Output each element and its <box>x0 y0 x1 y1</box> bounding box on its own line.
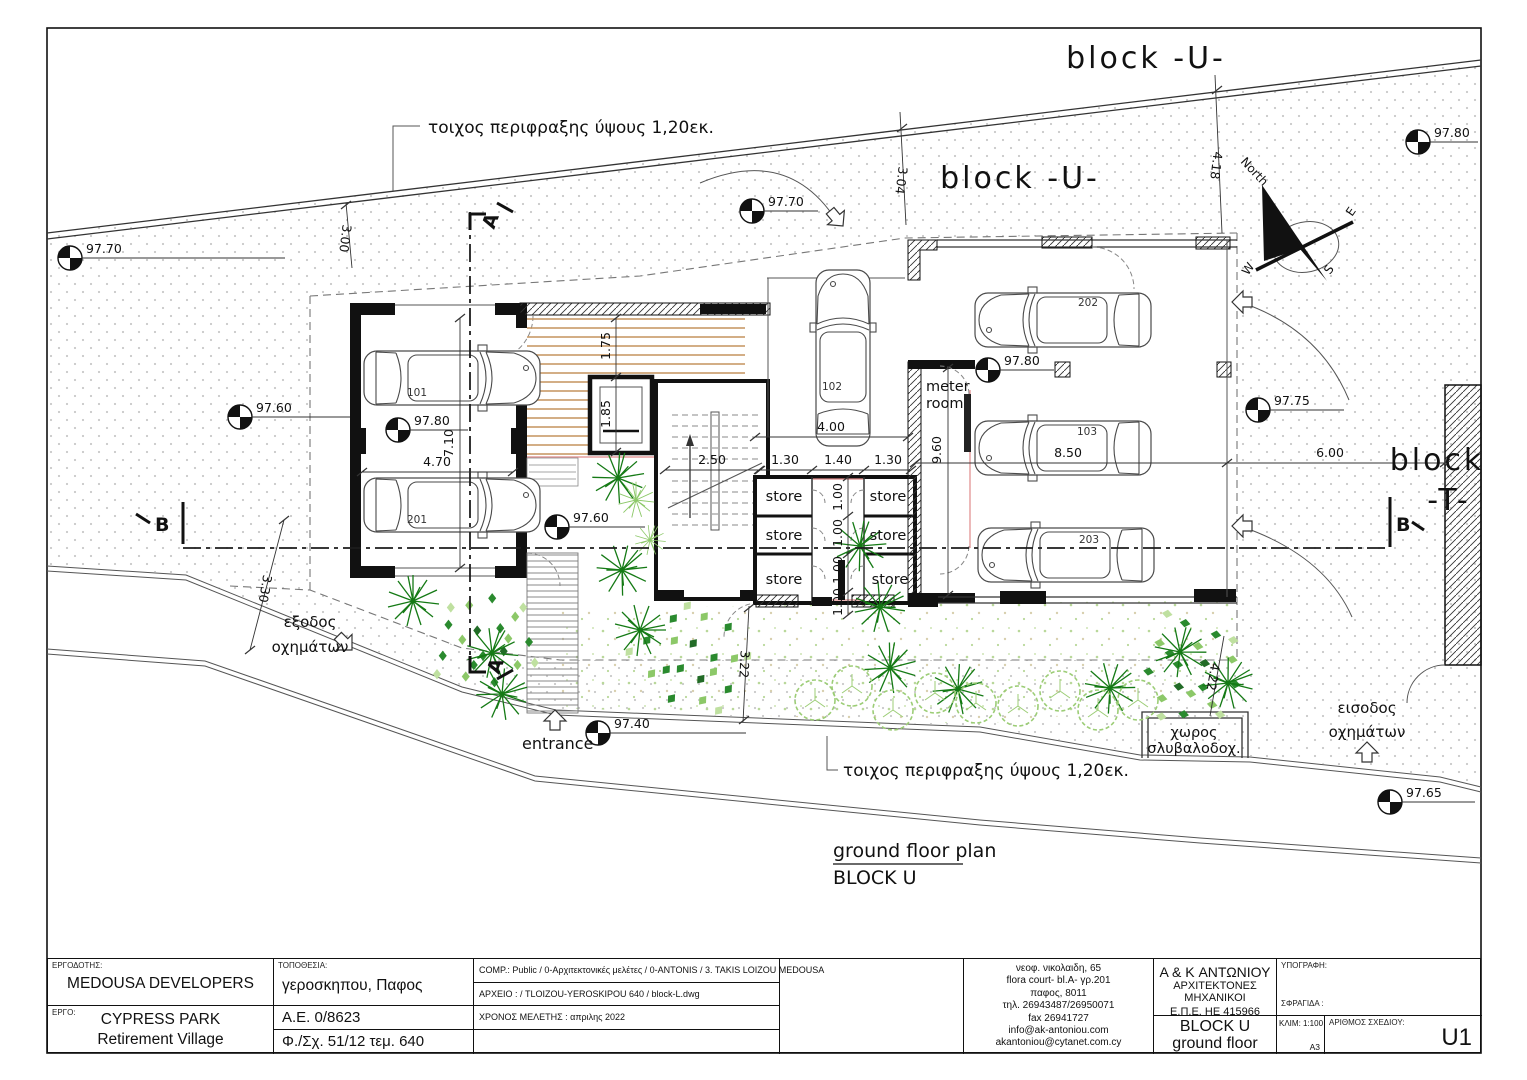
firm-line1: A & K ΑΝΤΩΝΙΟΥ <box>1154 964 1276 980</box>
comp-cell: COMP.: Public / 0-Αρχιτεκτονικές μελέτες… <box>473 959 779 983</box>
drawing-name-line2: ground floor <box>1154 1035 1276 1052</box>
staircase <box>656 381 768 637</box>
store-label-4: store <box>870 528 907 544</box>
dim-1-00c: 1.00 <box>830 556 845 584</box>
ae-value: Α.Ε. 0/8623 <box>282 1009 473 1026</box>
address-line: τηλ. 26943487/26950071 <box>964 1000 1153 1012</box>
dim-1-00d: 1.00 <box>830 588 845 616</box>
store-label-3: store <box>766 528 803 544</box>
section-b-right: B <box>1396 514 1410 536</box>
address-line: νεοφ. νικολαιδη, 65 <box>964 963 1153 975</box>
address-line: info@ak-antoniou.com <box>964 1025 1153 1037</box>
level-97-70-nw: 97.70 <box>86 241 122 256</box>
project-cell: ΕΡΓΟ: CYPRESS PARK Retirement Village <box>48 1006 273 1054</box>
level-97-70-top: 97.70 <box>768 194 804 209</box>
dim-7-10: 7.10 <box>441 429 456 457</box>
address-line: fax 26941727 <box>964 1013 1153 1025</box>
car-201 <box>364 472 540 538</box>
fence-label-top: τοιχος περιφραξης ύψους 1,20εκ. <box>428 118 714 138</box>
project-line2: Retirement Village <box>48 1030 273 1050</box>
level-97-80-garage: 97.80 <box>414 413 450 428</box>
address-line: παφος, 8011 <box>964 988 1153 1000</box>
scale-cell: ΚΛΙΜ: 1:100 A3 <box>1276 1016 1324 1054</box>
sheet-value: Φ./Σχ. 51/12 τεμ. 640 <box>282 1033 473 1050</box>
level-97-80-ne: 97.80 <box>1434 125 1470 140</box>
dim-4-00: 4.00 <box>817 419 845 434</box>
block-t-line2: -T- <box>1427 483 1470 518</box>
section-b-left: B <box>155 514 169 536</box>
car-label-103: 103 <box>1077 426 1097 438</box>
project-label: ΕΡΓΟ: <box>52 1008 76 1017</box>
bins-label-2: σλυβαλοδοχ. <box>1147 741 1240 757</box>
level-97-60-left: 97.60 <box>256 400 292 415</box>
level-97-65-road: 97.65 <box>1406 785 1442 800</box>
paper-size: A3 <box>1310 1042 1320 1052</box>
drawing-name-cell: BLOCK U ground floor <box>1153 1016 1276 1054</box>
store-label-5: store <box>766 572 803 588</box>
number-label: ΑΡΙΘΜΟΣ ΣΧΕΔΙΟΥ: <box>1329 1018 1404 1027</box>
entry-label-2: οχημάτων <box>1329 723 1406 741</box>
meter-room-label-2: room <box>926 396 964 412</box>
store-label-1: store <box>766 489 803 505</box>
level-97-40-entrance: 97.40 <box>614 716 650 731</box>
block-u-title-top: block -U- <box>1066 41 1226 76</box>
signature-cell: ΥΠΟΓΡΑΦΗ: ΣΦΡΑΓΙΔΑ : <box>1276 959 1482 1016</box>
location-value: γεροσκηπου, Παφος <box>282 977 473 995</box>
car-203 <box>978 522 1154 588</box>
dim-8-50: 8.50 <box>1054 445 1082 460</box>
architect-firm: A & K ΑΝΤΩΝΙΟΥ ΑΡΧΙΤΕΚΤΟΝΕΣ ΜΗΧΑΝΙΚΟΙ Ε.… <box>1153 959 1276 1016</box>
block-u-title-inner: block -U- <box>940 161 1100 196</box>
walkway <box>527 553 578 713</box>
car-label-201: 201 <box>407 514 427 526</box>
sheet-cell: Φ./Σχ. 51/12 τεμ. 640 <box>273 1030 473 1054</box>
drawing-name-line1: BLOCK U <box>1154 1018 1276 1035</box>
entrance-label: entrance <box>522 734 593 753</box>
car-label-203: 203 <box>1079 534 1099 546</box>
dim-1-85: 1.85 <box>598 400 613 428</box>
plan-title-line1: ground floor plan <box>833 840 996 862</box>
meter-room-label-1: meter <box>926 379 970 395</box>
level-97-80-carport: 97.80 <box>1004 353 1040 368</box>
firm-line2: ΑΡΧΙΤΕΚΤΟΝΕΣ ΜΗΧΑΝΙΚΟΙ <box>1154 980 1276 1004</box>
dim-3-22: 3.22 <box>736 650 752 679</box>
level-97-75-east: 97.75 <box>1274 393 1310 408</box>
plan-title-line2: BLOCK U <box>833 867 917 889</box>
bins-label-1: χωρος <box>1170 725 1217 741</box>
drawing-number: U1 <box>1441 1024 1472 1052</box>
dim-1-30b: 1.30 <box>874 452 902 467</box>
study-value: ΧΡΟΝΟΣ ΜΕΛΕΤΗΣ : απριλης 2022 <box>479 1012 779 1022</box>
dim-2-50: 2.50 <box>698 452 726 467</box>
store-label-2: store <box>870 489 907 505</box>
project-line1: CYPRESS PARK <box>48 1010 273 1030</box>
car-202 <box>975 287 1151 353</box>
signature-label: ΥΠΟΓΡΑΦΗ: <box>1281 961 1327 970</box>
ae-cell: Α.Ε. 0/8623 <box>273 1006 473 1030</box>
exit-label-1: εξοδος <box>284 613 337 631</box>
fence-label-bottom: τοιχος περιφραξης ύψους 1,20εκ. <box>843 761 1129 781</box>
dim-1-00b: 1.00 <box>830 519 845 547</box>
dim-6-00: 6.00 <box>1316 445 1344 460</box>
car-label-202: 202 <box>1078 297 1098 309</box>
dim-1-00a: 1.00 <box>830 483 845 511</box>
car-label-101: 101 <box>407 387 427 399</box>
dim-1-40: 1.40 <box>824 452 852 467</box>
garden-strip <box>560 600 1238 724</box>
file-cell: ΑΡΧΕΙΟ : / TLOIZOU-YEROSKIPOU 640 / bloc… <box>473 983 779 1006</box>
location-cell: ΤΟΠΟΘΕΣΙΑ: γεροσκηπου, Παφος <box>273 959 473 1006</box>
dim-1-30a: 1.30 <box>771 452 799 467</box>
dim-9-60: 9.60 <box>929 436 944 464</box>
car-101 <box>364 345 540 411</box>
store-label-6: store <box>872 572 909 588</box>
location-label: ΤΟΠΟΘΕΣΙΑ: <box>278 961 327 970</box>
title-block: ΕΡΓΟΔΟΤΗΣ: MEDOUSA DEVELOPERS ΕΡΓΟ: CYPR… <box>47 958 1481 1053</box>
file-value: ΑΡΧΕΙΟ : / TLOIZOU-YEROSKIPOU 640 / bloc… <box>479 989 779 999</box>
car-label-102: 102 <box>822 381 842 393</box>
empty-cell <box>779 959 963 1054</box>
scale-value: ΚΛΙΜ: 1:100 <box>1279 1019 1324 1028</box>
dim-1-75: 1.75 <box>598 332 613 360</box>
address-line: flora court- bl.A- γρ.201 <box>964 975 1153 987</box>
stamp-label: ΣΦΡΑΓΙΔΑ : <box>1281 999 1324 1008</box>
plan-canvas: 101 201 102 202 103 203 <box>0 0 1527 1080</box>
comp-value: COMP.: Public / 0-Αρχιτεκτονικές μελέτες… <box>479 965 779 975</box>
block-t-line1: block <box>1390 443 1485 478</box>
architect-address: νεοφ. νικολαιδη, 65 flora court- bl.A- γ… <box>963 959 1153 1054</box>
exit-label-2: οχημάτων <box>272 638 349 656</box>
address-line: akantoniou@cytanet.com.cy <box>964 1037 1153 1049</box>
level-97-60-walkway: 97.60 <box>573 510 609 525</box>
number-cell: ΑΡΙΘΜΟΣ ΣΧΕΔΙΟΥ: U1 <box>1324 1016 1482 1054</box>
site-plan-sheet: 101 201 102 202 103 203 <box>0 0 1527 1080</box>
study-cell: ΧΡΟΝΟΣ ΜΕΛΕΤΗΣ : απριλης 2022 <box>473 1006 779 1030</box>
entry-label-1: εισοδος <box>1337 699 1396 717</box>
